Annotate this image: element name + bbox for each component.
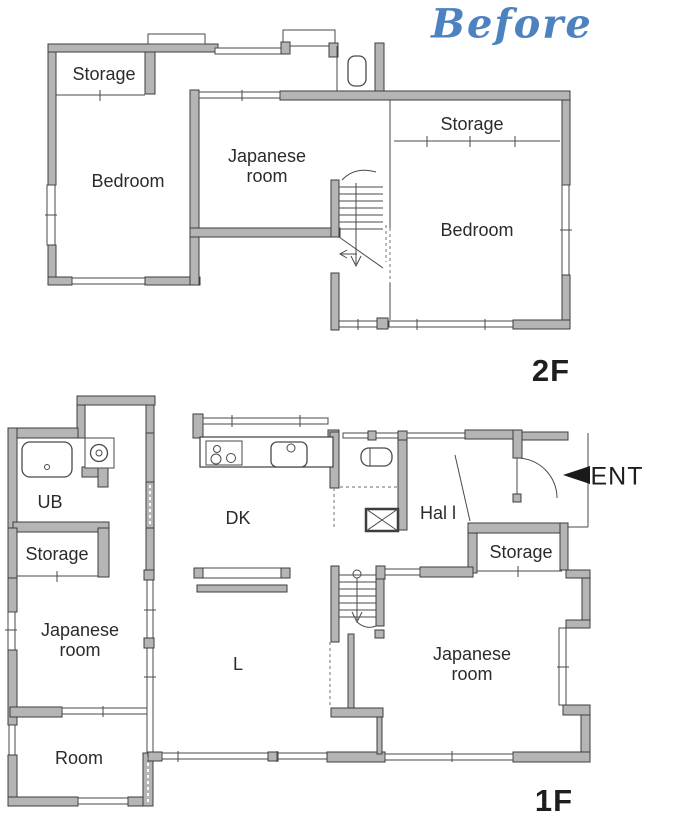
- floor-1f-plan: [5, 396, 590, 806]
- washer-box-icon: [366, 509, 398, 531]
- kitchen-counter-icon: [200, 437, 333, 467]
- bathtub-icon: [22, 442, 72, 477]
- room-label-2f-storage-right: Storage: [440, 114, 503, 134]
- room-label-2f-japanese-room: Japanese room: [217, 146, 317, 186]
- room-label-2f-storage-left: Storage: [72, 64, 135, 84]
- room-label-2f-bedroom-right: Bedroom: [440, 220, 513, 240]
- toilet-2f-icon: [348, 56, 366, 86]
- floor-label-1f: 1F: [535, 783, 573, 819]
- washbasin-icon: [85, 438, 114, 468]
- before-title: Before: [431, 1, 593, 48]
- floor-label-2f: 2F: [532, 353, 570, 389]
- entrance-door-arc: [513, 458, 557, 502]
- toilet-1f-icon: [361, 448, 392, 466]
- floor-plan-page: Before Storage Bedroom Japanese room Sto…: [0, 0, 680, 837]
- room-label-1f-room: Room: [55, 748, 103, 768]
- ent-arrow-icon: [563, 466, 590, 484]
- room-label-1f-living: L: [233, 654, 243, 674]
- room-label-1f-storage-left: Storage: [25, 544, 88, 564]
- room-label-1f-japanese-right: Japanese room: [422, 644, 522, 684]
- room-label-1f-ent: ENT: [591, 463, 644, 492]
- room-label-1f-hall: Hal l: [420, 503, 456, 523]
- floor-plan-drawing: [0, 0, 680, 837]
- room-label-2f-bedroom-left: Bedroom: [91, 171, 164, 191]
- room-label-1f-japanese-left: Japanese room: [30, 620, 130, 660]
- room-label-1f-dk: DK: [225, 508, 250, 528]
- room-label-1f-ub: UB: [37, 492, 62, 512]
- stairs-2f: [331, 170, 386, 330]
- room-label-1f-storage-right: Storage: [489, 542, 552, 562]
